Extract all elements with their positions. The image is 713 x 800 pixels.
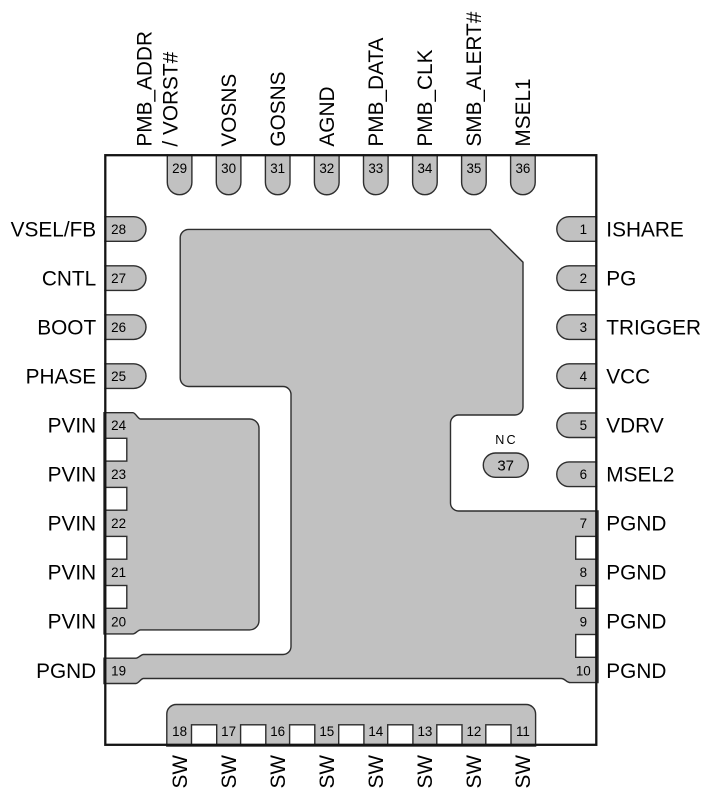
svg-text:31: 31 [270,161,285,176]
svg-text:VCC: VCC [606,365,650,388]
svg-text:33: 33 [368,161,383,176]
svg-text:15: 15 [319,724,334,739]
svg-text:29: 29 [172,161,187,176]
svg-text:/ VORST#: / VORST# [159,51,182,146]
svg-text:32: 32 [319,161,334,176]
svg-text:27: 27 [111,271,126,286]
svg-text:11: 11 [516,724,530,739]
svg-text:PGND: PGND [606,660,666,683]
svg-text:TRIGGER: TRIGGER [606,316,701,339]
svg-text:16: 16 [270,724,285,739]
svg-text:PHASE: PHASE [26,365,97,388]
svg-text:36: 36 [515,161,530,176]
svg-text:SW: SW [414,755,437,789]
svg-text:SW: SW [316,755,339,789]
svg-text:14: 14 [368,724,383,739]
svg-text:VOSNS: VOSNS [218,74,241,147]
svg-text:12: 12 [466,724,481,739]
svg-text:VDRV: VDRV [606,415,664,438]
svg-text:35: 35 [466,161,481,176]
svg-text:SW: SW [218,755,241,789]
svg-text:NC: NC [495,433,518,447]
svg-text:3: 3 [580,320,587,335]
svg-text:SW: SW [512,755,535,789]
svg-text:25: 25 [111,369,126,384]
svg-text:9: 9 [580,614,587,629]
svg-text:GOSNS: GOSNS [267,71,290,146]
svg-text:30: 30 [221,161,236,176]
svg-text:ISHARE: ISHARE [606,218,683,241]
svg-text:PMB_ADDR: PMB_ADDR [133,31,156,147]
svg-text:19: 19 [111,663,126,678]
svg-text:SW: SW [169,755,192,789]
svg-text:26: 26 [111,320,126,335]
svg-text:17: 17 [221,724,236,739]
svg-text:21: 21 [111,565,126,580]
svg-text:PGND: PGND [606,611,666,634]
svg-text:PMB_DATA: PMB_DATA [365,37,388,146]
svg-text:PVIN: PVIN [48,415,97,438]
svg-text:37: 37 [497,458,514,475]
svg-text:PMB_CLK: PMB_CLK [414,49,437,146]
svg-text:PGND: PGND [606,513,666,536]
svg-text:18: 18 [172,724,187,739]
svg-text:8: 8 [580,565,587,580]
svg-text:6: 6 [580,467,587,482]
svg-text:PVIN: PVIN [48,464,97,487]
svg-text:28: 28 [111,222,126,237]
svg-text:PG: PG [606,267,636,290]
svg-text:SW: SW [267,755,290,789]
svg-text:5: 5 [580,418,587,433]
svg-text:10: 10 [576,663,591,678]
svg-text:SW: SW [365,755,388,789]
svg-text:SMB_ALERT#: SMB_ALERT# [463,11,486,146]
svg-text:PGND: PGND [36,660,96,683]
svg-text:24: 24 [111,418,126,433]
svg-text:13: 13 [417,724,432,739]
svg-text:AGND: AGND [316,87,339,147]
svg-text:PVIN: PVIN [48,562,97,585]
svg-text:MSEL1: MSEL1 [512,78,535,146]
svg-text:23: 23 [111,467,126,482]
svg-text:PVIN: PVIN [48,513,97,536]
svg-text:CNTL: CNTL [42,267,96,290]
svg-text:SW: SW [463,755,486,789]
svg-text:7: 7 [580,516,587,531]
svg-text:2: 2 [580,271,587,286]
svg-text:MSEL2: MSEL2 [606,464,674,487]
svg-text:VSEL/FB: VSEL/FB [11,218,97,241]
svg-text:PVIN: PVIN [48,611,97,634]
svg-text:PGND: PGND [606,562,666,585]
svg-text:4: 4 [580,369,588,384]
svg-text:1: 1 [580,222,587,237]
svg-text:BOOT: BOOT [37,316,96,339]
svg-text:20: 20 [111,614,126,629]
svg-text:34: 34 [417,161,432,176]
svg-text:22: 22 [111,516,126,531]
